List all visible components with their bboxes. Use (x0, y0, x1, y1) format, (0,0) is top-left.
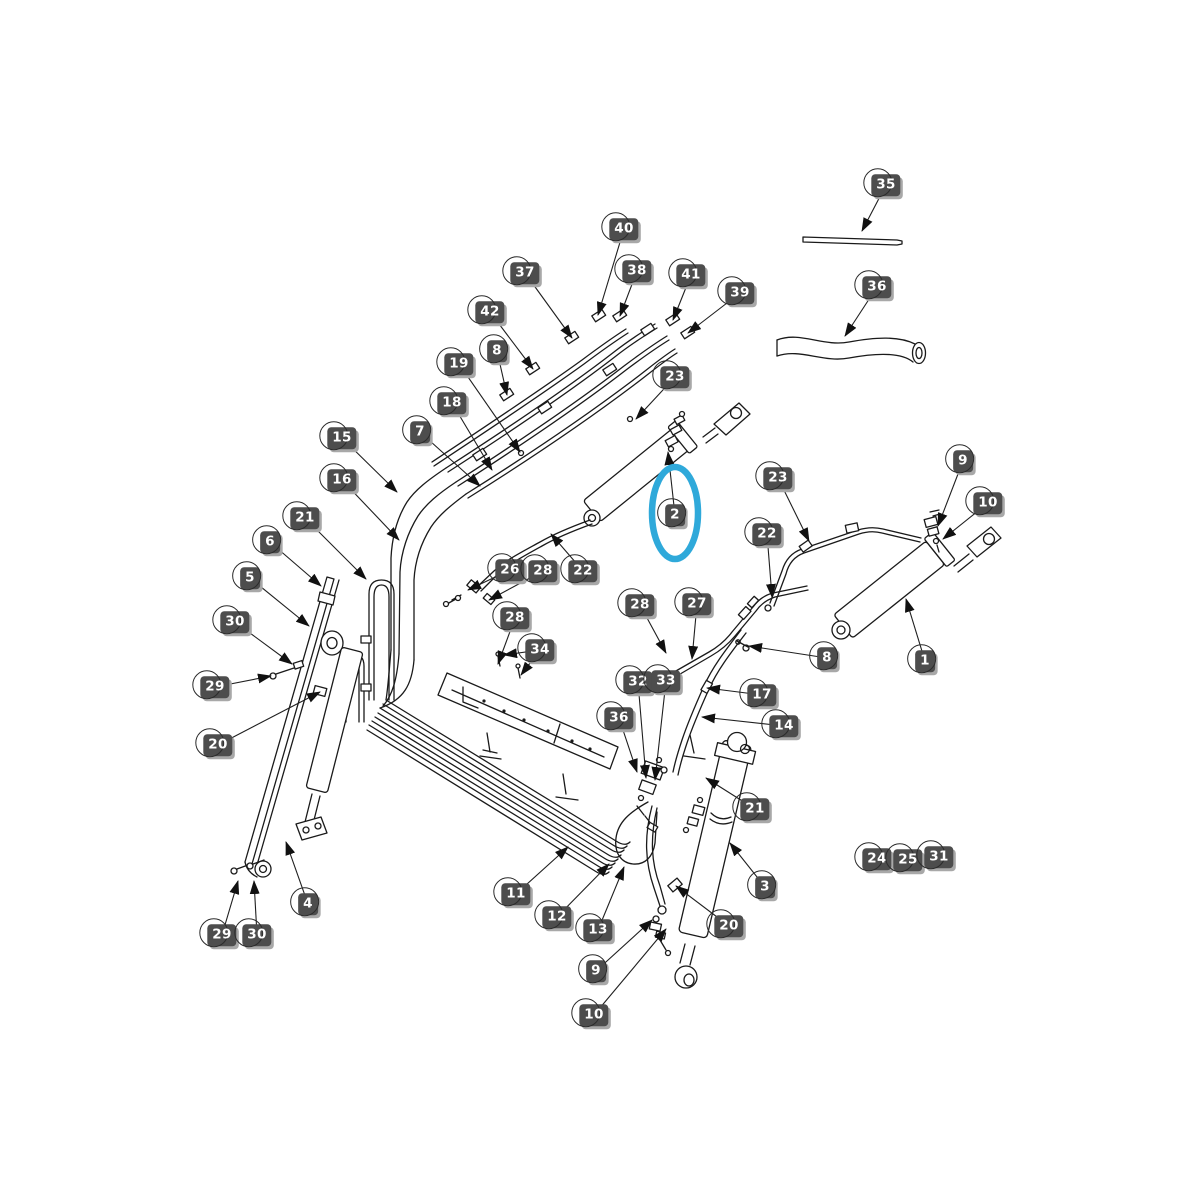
callout-badge-37-3: 37 (510, 262, 539, 284)
leader-line-33 (655, 681, 666, 780)
callout-badge-4-48: 4 (298, 893, 318, 915)
callout-badge-21-15: 21 (290, 507, 319, 529)
callout-badge-20-20: 20 (203, 734, 232, 756)
callout-badge-23-27: 23 (763, 467, 792, 489)
callout-badge-13-47: 13 (583, 919, 612, 941)
callout-badge-10-30: 10 (973, 492, 1002, 514)
callout-badge-16-14: 16 (327, 469, 356, 491)
callout-badge-36-37: 36 (604, 707, 633, 729)
callout-badge-11-45: 11 (501, 883, 530, 905)
callout-badge-20-42: 20 (714, 915, 743, 937)
callout-badge-29-19: 29 (200, 676, 229, 698)
callout-badge-22-28: 22 (752, 523, 781, 545)
callout-badge-29-49: 29 (207, 924, 236, 946)
callout-badge-28-24: 28 (500, 607, 529, 629)
callout-badge-38-4: 38 (622, 260, 651, 282)
callout-badge-28-22: 28 (528, 560, 557, 582)
callout-badge-9-43: 9 (586, 960, 606, 982)
callout-badge-1-31: 1 (915, 650, 935, 672)
callout-badge-15-13: 15 (327, 427, 356, 449)
callout-badge-7-12: 7 (410, 421, 430, 443)
callout-badge-18-10: 18 (437, 392, 466, 414)
callout-badge-28-33: 28 (625, 594, 654, 616)
callout-badge-14-39: 14 (769, 715, 798, 737)
callout-badge-21-40: 21 (740, 798, 769, 820)
callout-badge-39-6: 39 (725, 282, 754, 304)
callout-badge-27-34: 27 (682, 593, 711, 615)
callout-badge-22-23: 22 (568, 560, 597, 582)
callout-badge-40-2: 40 (609, 218, 638, 240)
callout-badge-41-5: 41 (676, 264, 705, 286)
callout-badge-6-16: 6 (260, 531, 280, 553)
callout-badge-8-32: 8 (817, 647, 837, 669)
callout-badge-36-1: 36 (862, 276, 891, 298)
leader-lines (215, 185, 988, 1015)
callout-badge-3-41: 3 (755, 876, 775, 898)
callout-badge-10-44: 10 (579, 1004, 608, 1026)
callout-badge-12-46: 12 (542, 906, 571, 928)
callout-badge-33-36: 33 (651, 670, 680, 692)
callout-badge-19-9: 19 (444, 353, 473, 375)
callout-badge-8-8: 8 (487, 340, 507, 362)
parts-diagram: 3536403738413942819182371516216530292026… (0, 0, 1200, 1200)
callout-badge-35-0: 35 (871, 174, 900, 196)
leader-line-20 (218, 692, 320, 745)
callout-badge-30-50: 30 (242, 924, 271, 946)
callout-badge-23-11: 23 (660, 366, 689, 388)
callout-badge-30-18: 30 (220, 611, 249, 633)
callout-badge-9-29: 9 (953, 450, 973, 472)
callout-badge-34-25: 34 (525, 639, 554, 661)
leader-line-32 (638, 682, 646, 778)
callout-badge-42-7: 42 (475, 301, 504, 323)
callout-badge-2-26: 2 (665, 504, 685, 526)
callout-badge-5-17: 5 (240, 567, 260, 589)
callout-badge-17-38: 17 (747, 684, 776, 706)
leader-line-19 (459, 364, 520, 452)
callout-badge-31-53: 31 (924, 846, 953, 868)
